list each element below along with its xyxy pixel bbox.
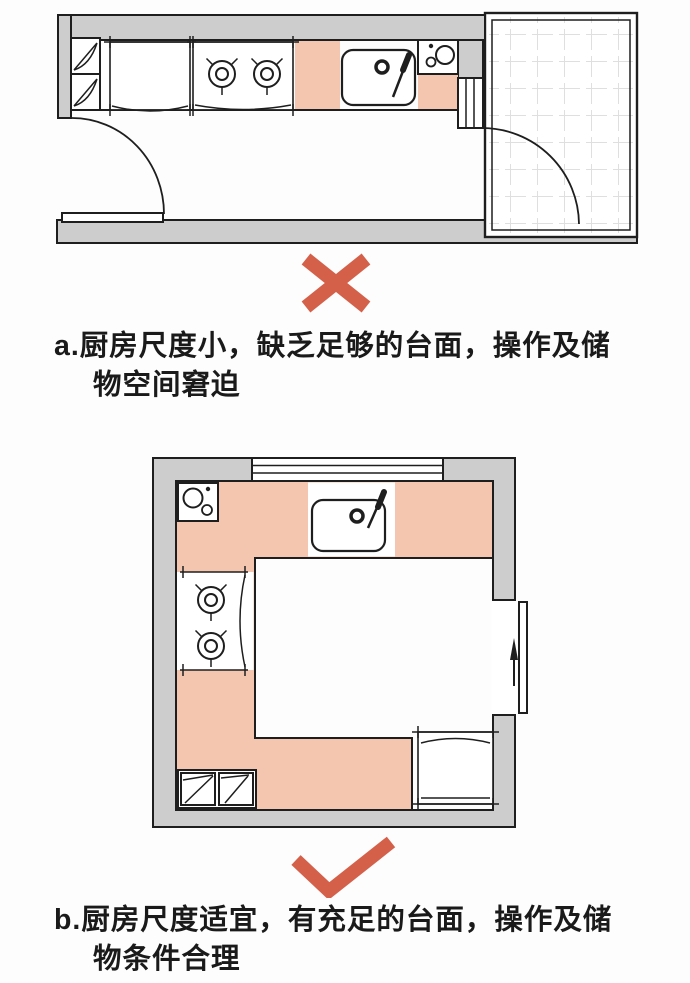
floor-plan-b [150,448,545,830]
top-wall [58,15,485,40]
tiled-balcony-floor [485,13,637,237]
kitchen-layout-comparison-page: a.厨房尺度小，缺乏足够的台面，操作及储 物空间窘迫 [0,0,690,983]
caption-a: a.厨房尺度小，缺乏足够的台面，操作及储 物空间窘迫 [54,327,664,405]
caption-b-line1: b.厨房尺度适宜，有充足的台面，操作及储 [54,901,664,940]
door-swing-arc-icon [72,118,164,214]
base-cabinets-icon [178,770,256,808]
left-wall [58,15,71,118]
divider-wall [458,40,483,78]
sink-icon [312,492,385,551]
base-cabinet-icon [104,36,196,116]
small-appliance-icon [418,40,458,74]
counter-highlight [295,41,340,110]
balcony-door-icon [458,78,483,128]
refrigerator-icon [71,38,100,110]
refrigerator-icon [412,726,499,810]
entry-door-leaf [62,213,163,222]
check-mark-icon [284,834,402,903]
floor-plan-a [52,8,640,244]
caption-b-line2: 物条件合理 [54,940,664,979]
sink-icon [342,50,415,105]
small-appliance-icon [178,483,218,521]
window-icon [252,458,443,481]
caption-a-line1: a.厨房尺度小，缺乏足够的台面，操作及储 [54,327,664,366]
stove-two-burner-icon [177,566,254,676]
caption-b: b.厨房尺度适宜，有充足的台面，操作及储 物条件合理 [54,901,664,979]
x-mark-icon [296,250,376,321]
stove-two-burner-icon [187,36,299,116]
caption-a-line2: 物空间窘迫 [54,366,664,405]
